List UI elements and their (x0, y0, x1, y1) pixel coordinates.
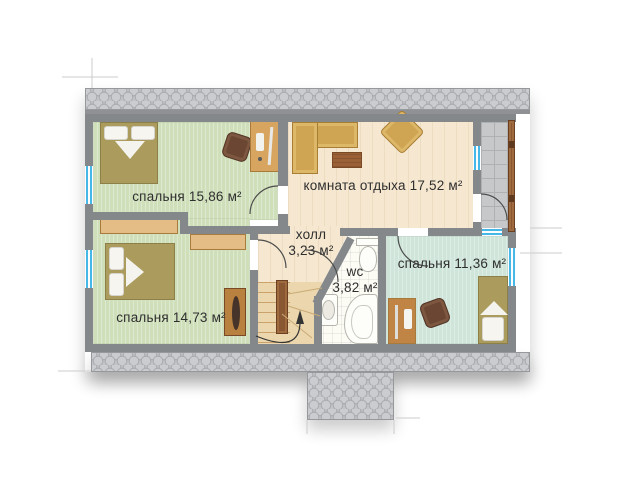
wardrobe (190, 234, 246, 250)
pillow (482, 317, 504, 341)
keyboard (404, 309, 412, 329)
roof-strip-top (85, 88, 530, 110)
window (508, 248, 516, 286)
pillow (131, 126, 155, 140)
window (473, 146, 481, 170)
wall-segment (85, 114, 93, 352)
wardrobe (100, 218, 178, 234)
room-name: спальня (116, 310, 169, 325)
room-area: 17,52 м² (410, 178, 463, 193)
monitor (232, 296, 240, 330)
wall-segment (340, 228, 398, 236)
pillow (109, 273, 124, 296)
railing-band (509, 141, 514, 148)
coffee-table (332, 152, 362, 168)
room-area: 14,73 м² (173, 310, 226, 325)
pillow (104, 126, 128, 140)
single-bed (478, 276, 508, 344)
room-label-lounge: комната отдыха 17,52 м² (303, 178, 462, 194)
toilet-tank (356, 238, 380, 246)
wall-segment (85, 212, 188, 220)
wall-segment (378, 236, 386, 344)
monitor (268, 127, 274, 165)
wall-segment (428, 228, 482, 236)
balcony-railing (508, 120, 515, 232)
keyboard (256, 133, 264, 151)
floor-balcony (481, 122, 508, 228)
pillow (109, 247, 124, 270)
room-label-wc: wc 3,82 м² (332, 264, 377, 296)
wall-segment (250, 270, 258, 344)
wall-segment (278, 114, 288, 186)
wall-segment (85, 114, 516, 122)
room-area: 15,86 м² (189, 189, 242, 204)
room-area: 11,36 м² (454, 256, 506, 271)
wall-segment (473, 222, 481, 228)
double-bed (105, 243, 175, 300)
sheet-fold (480, 301, 508, 315)
dormer-roof (307, 372, 394, 420)
wall-segment (250, 234, 258, 240)
room-label-bedroom-top: спальня 15,86 м² (132, 189, 242, 205)
desk-with-monitor (224, 288, 246, 336)
room-label-hall: холл 3,23 м² (288, 227, 333, 259)
wall-segment (85, 344, 516, 352)
room-area: 3,23 м² (288, 243, 333, 259)
staircase-railing (276, 280, 288, 334)
monitor (395, 305, 398, 339)
railing-band (509, 195, 514, 202)
roof-strip-bottom (91, 352, 530, 372)
desk-with-computer (388, 298, 416, 344)
window (482, 228, 502, 236)
room-area: 3,82 м² (332, 280, 377, 296)
floor-plan-canvas: спальня 15,86 м² комната отдыха 17,52 м²… (0, 0, 640, 481)
sheet-fold (115, 141, 145, 159)
corner-sofa-left-arm (292, 122, 318, 174)
wall-segment (508, 228, 516, 352)
room-label-bedroom-bottom: спальня 14,73 м² (116, 310, 226, 326)
room-name: wc (332, 264, 377, 280)
sheet-fold (126, 257, 144, 287)
window (85, 166, 93, 204)
sink-basin (322, 300, 335, 320)
double-bed (100, 122, 158, 184)
room-label-bedroom-right: спальня 11,36 м² (398, 256, 507, 272)
room-name: комната отдыха (303, 178, 405, 193)
desk-accessory (258, 157, 262, 161)
window (85, 250, 93, 288)
room-name: спальня (398, 256, 451, 271)
bathtub-basin (351, 305, 373, 339)
room-name: холл (288, 227, 333, 243)
wall-segment (186, 226, 290, 234)
room-name: спальня (132, 189, 185, 204)
